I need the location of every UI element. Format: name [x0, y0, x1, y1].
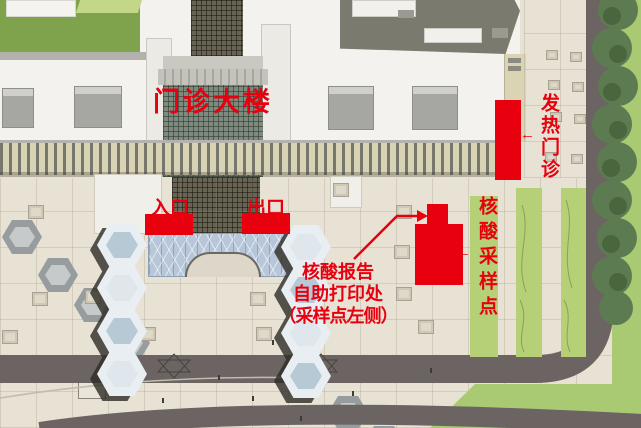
entrance-marker [145, 214, 193, 235]
exit-marker [242, 213, 290, 234]
report-print-label: 核酸报告 自助打印处 （采样点左侧） [268, 261, 408, 327]
building-label: 门诊大楼 [153, 80, 273, 119]
hospital-site-map: 门诊大楼 入口 出口 发热门诊 ← 核酸采样点 ← 核酸报告 自助打印处 （采样… [0, 0, 641, 428]
report-print-line3: （采样点左侧） [268, 305, 408, 327]
hex-trellis-column-left [97, 224, 147, 396]
tree-row [592, 0, 638, 325]
sampling-point-label: 核酸采样点 [473, 196, 500, 321]
report-print-line2: 自助打印处 [268, 283, 408, 305]
sampling-point-arrow-icon: ← [456, 244, 471, 261]
green-median-strip [516, 188, 542, 357]
green-median-strip [561, 188, 586, 357]
fever-clinic-arrow-icon: ← [520, 126, 535, 143]
report-print-line1: 核酸报告 [268, 261, 408, 283]
fever-clinic-label: 发热门诊 [535, 93, 562, 181]
bottom-road [40, 415, 641, 428]
report-print-marker [427, 204, 448, 224]
fever-clinic-marker [495, 100, 521, 180]
